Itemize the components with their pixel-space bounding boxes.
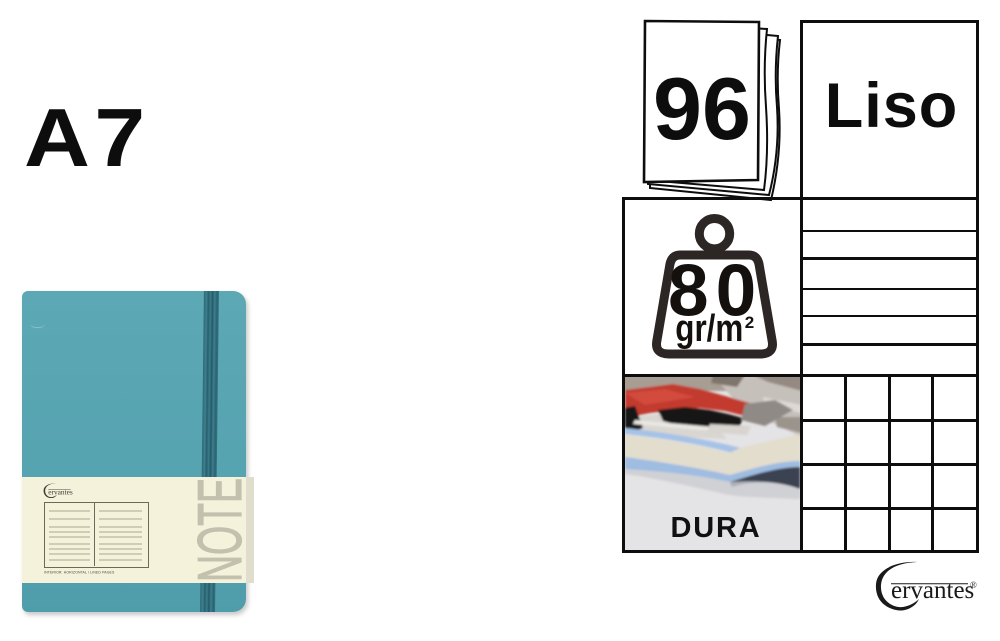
svg-text:ervantes: ervantes	[48, 487, 73, 496]
svg-text:96: 96	[653, 59, 751, 158]
svg-text:DURA: DURA	[671, 512, 762, 544]
svg-text:NOTE: NOTE	[192, 478, 247, 582]
svg-text:®: ®	[970, 580, 977, 590]
svg-text:2: 2	[745, 313, 754, 332]
svg-text:gr/m: gr/m	[675, 308, 743, 350]
svg-text:ervantes: ervantes	[891, 577, 974, 604]
